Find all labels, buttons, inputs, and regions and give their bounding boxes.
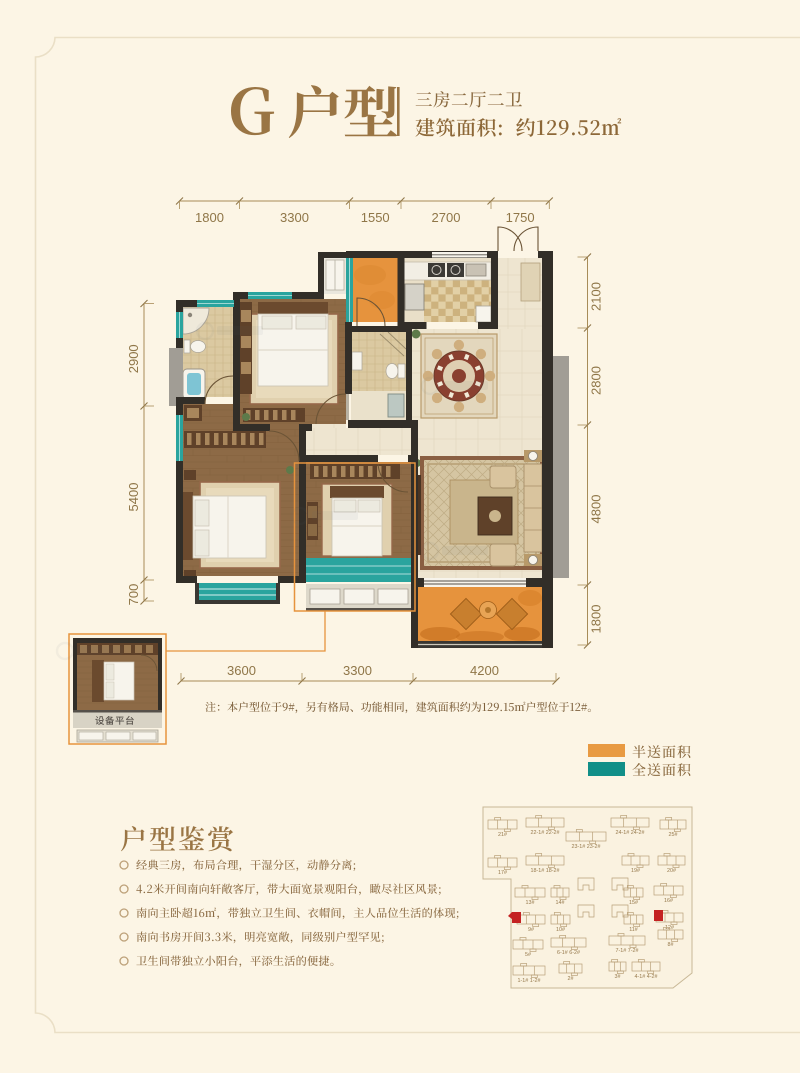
svg-text:10#: 10# bbox=[556, 927, 565, 933]
svg-text:4800: 4800 bbox=[589, 495, 604, 524]
svg-text:1800: 1800 bbox=[589, 605, 604, 634]
svg-text:3300: 3300 bbox=[280, 210, 309, 225]
svg-text:3#: 3# bbox=[615, 974, 621, 980]
svg-text:3600: 3600 bbox=[227, 663, 256, 678]
svg-text:4-1# 4-2#: 4-1# 4-2# bbox=[634, 974, 657, 980]
svg-text:9#: 9# bbox=[528, 927, 534, 933]
svg-text:21#: 21# bbox=[498, 832, 507, 838]
svg-text:2700: 2700 bbox=[432, 210, 461, 225]
svg-text:7-1# 7-2#: 7-1# 7-2# bbox=[615, 948, 638, 954]
svg-text:700: 700 bbox=[126, 584, 141, 606]
svg-text:20#: 20# bbox=[667, 868, 676, 874]
svg-text:18-1# 18-2#: 18-1# 18-2# bbox=[530, 868, 559, 874]
svg-text:2800: 2800 bbox=[589, 366, 604, 395]
svg-text:2#: 2# bbox=[568, 976, 574, 982]
svg-text:19#: 19# bbox=[631, 868, 640, 874]
svg-text:8#: 8# bbox=[668, 942, 674, 948]
svg-text:1-1# 1-2#: 1-1# 1-2# bbox=[517, 978, 540, 984]
svg-text:11#: 11# bbox=[629, 927, 638, 933]
svg-text:5400: 5400 bbox=[126, 483, 141, 512]
svg-text:14#: 14# bbox=[556, 900, 565, 906]
svg-text:3300: 3300 bbox=[343, 663, 372, 678]
svg-text:6-1# 6-2#: 6-1# 6-2# bbox=[557, 950, 580, 956]
svg-text:24-1# 24-2#: 24-1# 24-2# bbox=[615, 830, 644, 836]
svg-text:22-1# 22-2#: 22-1# 22-2# bbox=[530, 830, 559, 836]
svg-text:1550: 1550 bbox=[361, 210, 390, 225]
svg-text:2100: 2100 bbox=[589, 282, 604, 311]
svg-text:1750: 1750 bbox=[506, 210, 535, 225]
svg-text:13#: 13# bbox=[526, 900, 535, 906]
svg-text:16#: 16# bbox=[664, 898, 673, 904]
svg-text:15#: 15# bbox=[629, 900, 638, 906]
svg-text:4200: 4200 bbox=[470, 663, 499, 678]
svg-text:25#: 25# bbox=[669, 832, 678, 838]
svg-text:1800: 1800 bbox=[195, 210, 224, 225]
svg-text:5#: 5# bbox=[525, 952, 531, 958]
svg-text:23-1# 23-2#: 23-1# 23-2# bbox=[571, 844, 600, 850]
svg-text:2900: 2900 bbox=[126, 344, 141, 373]
svg-text:17#: 17# bbox=[498, 870, 507, 876]
